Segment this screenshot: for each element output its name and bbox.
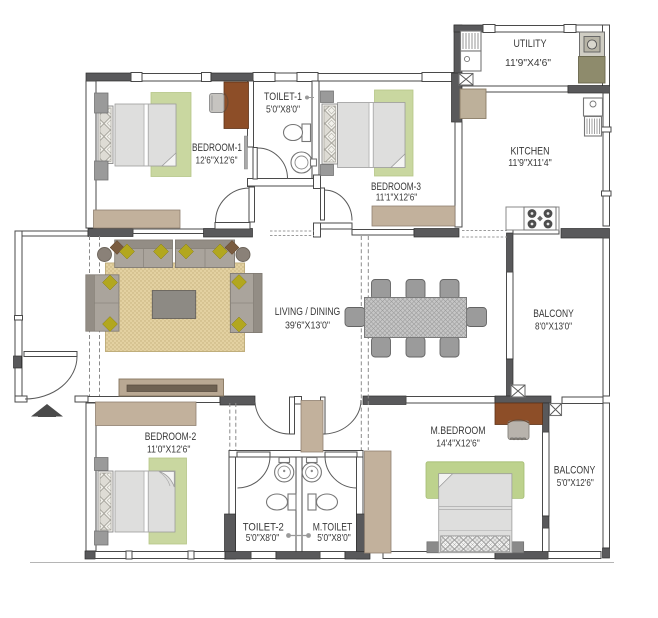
svg-text:11'0"X12'6": 11'0"X12'6" (147, 444, 191, 456)
svg-text:TOILET-1: TOILET-1 (264, 91, 302, 103)
svg-text:BEDROOM-1: BEDROOM-1 (192, 142, 242, 154)
svg-text:11'9"X4'6": 11'9"X4'6" (505, 57, 551, 69)
svg-text:8'0"X13'0": 8'0"X13'0" (535, 321, 572, 333)
svg-text:KITCHEN: KITCHEN (511, 146, 550, 158)
svg-text:BALCONY: BALCONY (533, 308, 574, 320)
svg-text:BALCONY: BALCONY (554, 465, 596, 477)
svg-text:LIVING / DINING: LIVING / DINING (275, 306, 341, 318)
svg-text:5'0"X8'0": 5'0"X8'0" (246, 532, 280, 544)
svg-text:M.BEDROOM: M.BEDROOM (431, 425, 486, 437)
svg-text:14'4"X12'6": 14'4"X12'6" (436, 438, 480, 450)
svg-text:BEDROOM-2: BEDROOM-2 (145, 431, 197, 443)
svg-text:5'0"X8'0": 5'0"X8'0" (266, 104, 300, 116)
svg-text:5'0"X12'6": 5'0"X12'6" (557, 477, 594, 489)
svg-text:12'6"X12'6": 12'6"X12'6" (196, 155, 238, 167)
svg-text:UTILITY: UTILITY (514, 38, 548, 50)
svg-text:11'9"X11'4": 11'9"X11'4" (508, 157, 552, 169)
svg-text:11'1"X12'6": 11'1"X12'6" (376, 192, 418, 204)
svg-text:39'6"X13'0": 39'6"X13'0" (285, 320, 330, 332)
svg-text:5'0"X8'0": 5'0"X8'0" (317, 532, 351, 544)
